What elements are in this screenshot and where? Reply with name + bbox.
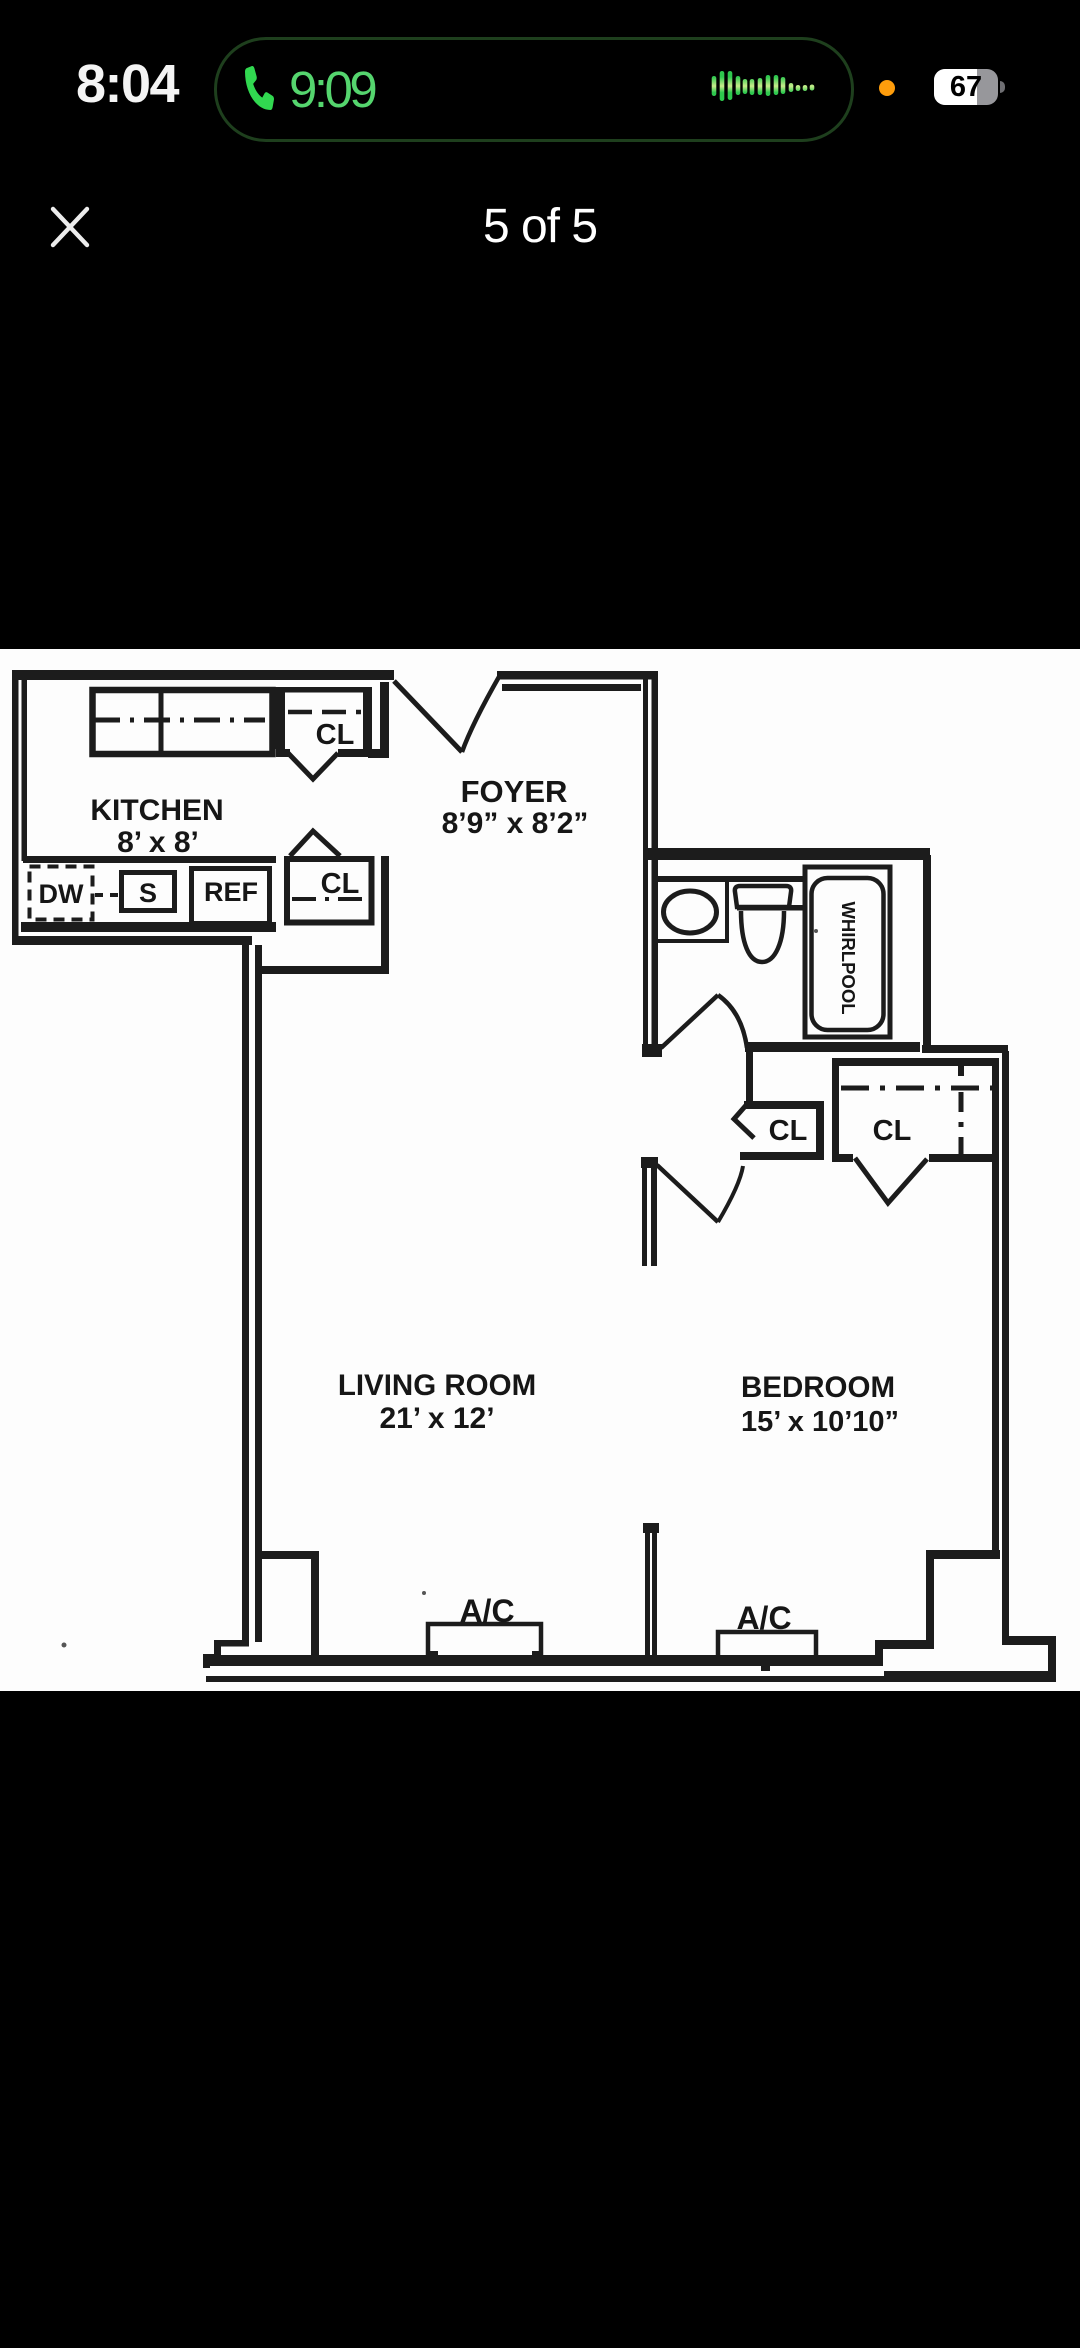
svg-text:REF: REF [204, 877, 258, 907]
svg-text:CL: CL [321, 868, 360, 900]
svg-text:S: S [139, 878, 157, 908]
svg-text:CL: CL [316, 719, 355, 751]
svg-text:15’ x 10’10”: 15’ x 10’10” [741, 1406, 899, 1438]
svg-text:A/C: A/C [459, 1593, 514, 1629]
svg-text:LIVING ROOM: LIVING ROOM [338, 1369, 536, 1402]
svg-text:FOYER: FOYER [461, 774, 568, 809]
svg-text:CL: CL [769, 1115, 808, 1147]
svg-text:KITCHEN: KITCHEN [90, 794, 223, 827]
svg-text:8’9” x 8’2”: 8’9” x 8’2” [442, 807, 589, 840]
svg-text:WHIRLPOOL: WHIRLPOOL [838, 901, 859, 1014]
svg-text:8’ x 8’: 8’ x 8’ [117, 826, 199, 859]
svg-text:DW: DW [39, 879, 84, 909]
svg-text:A/C: A/C [736, 1600, 791, 1636]
svg-text:BEDROOM: BEDROOM [741, 1371, 895, 1404]
svg-text:21’ x 12’: 21’ x 12’ [379, 1402, 494, 1435]
svg-text:CL: CL [873, 1115, 912, 1147]
